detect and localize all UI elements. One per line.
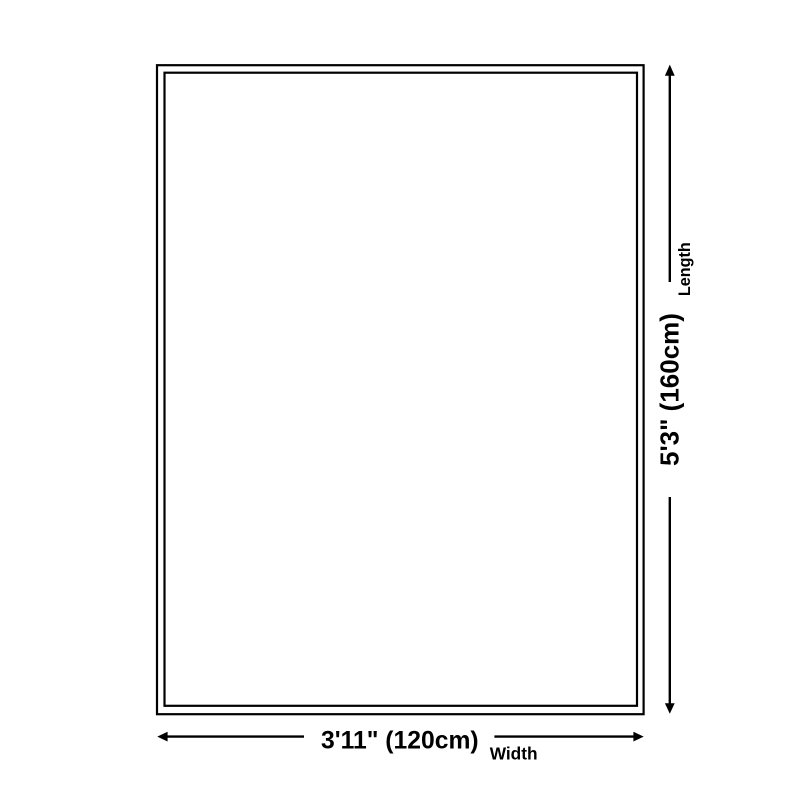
svg-text:5'3" (160cm): 5'3" (160cm) [654,313,684,466]
svg-text:3'11" (120cm): 3'11" (120cm) [321,728,479,755]
svg-text:Length: Length [676,242,694,296]
svg-text:Width: Width [490,744,538,764]
